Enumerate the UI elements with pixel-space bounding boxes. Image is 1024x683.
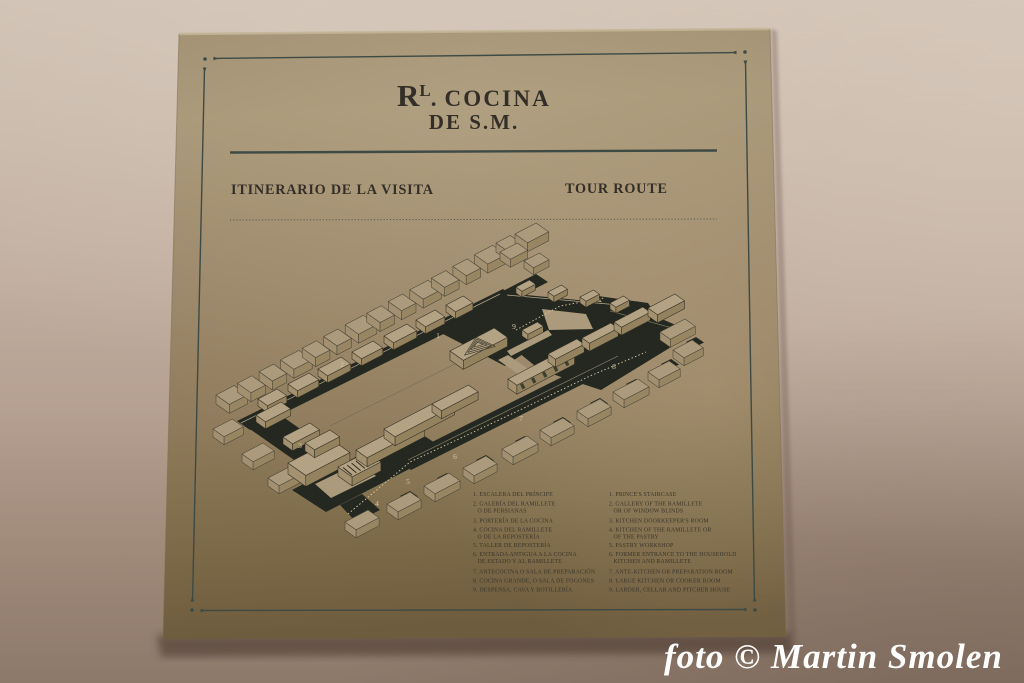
svg-text:1. PRINCE'S STAIRCASE: 1. PRINCE'S STAIRCASE [609,492,677,498]
svg-text:7: 7 [519,414,523,423]
svg-text:4. KITCHEN OF THE RAMILLETE OR: 4. KITCHEN OF THE RAMILLETE OR [609,528,712,534]
svg-text:8. LARGE KITCHEN OR COOKER ROO: 8. LARGE KITCHEN OR COOKER ROOM [609,579,721,585]
svg-text:4: 4 [375,499,379,508]
svg-text:foto © Martin Smolen: foto © Martin Smolen [664,637,1003,676]
svg-text:ITINERARIO DE LA VISITA: ITINERARIO DE LA VISITA [231,182,434,198]
svg-text:2. GALLERY OF THE RAMILLETE: 2. GALLERY OF THE RAMILLETE [609,502,703,508]
svg-text:OF THE PASTRY: OF THE PASTRY [614,535,660,541]
svg-text:4. COCINA DEL RAMILLETE: 4. COCINA DEL RAMILLETE [473,528,552,534]
svg-text:5. TALLER DE REPOSTERÍA: 5. TALLER DE REPOSTERÍA [473,541,551,549]
svg-text:9. LARDER, CELLAR AND PITCHER: 9. LARDER, CELLAR AND PITCHER HOUSE [609,588,731,594]
svg-text:6. FORMER ENTRANCE TO THE HOUS: 6. FORMER ENTRANCE TO THE HOUSEHOLD [609,552,736,558]
svg-text:6. ENTRADA ANTIGUA A LA COCINA: 6. ENTRADA ANTIGUA A LA COCINA [473,552,578,558]
svg-text:1: 1 [436,331,440,340]
svg-text:7. ANTECOCINA O SALA DE PREPAR: 7. ANTECOCINA O SALA DE PREPARACIÓN [473,568,596,576]
svg-text:5: 5 [406,477,410,486]
svg-text:TOUR ROUTE: TOUR ROUTE [565,181,668,197]
svg-text:3: 3 [298,441,302,450]
svg-text:OR OF WINDOW BLINDS: OR OF WINDOW BLINDS [614,509,684,515]
svg-text:8. COCINA GRANDE, O SALA DE FO: 8. COCINA GRANDE, O SALA DE FOGONES [473,579,594,585]
svg-text:7. ANTE-KITCHEN OR PREPARATION: 7. ANTE-KITCHEN OR PREPARATION ROOM [609,570,733,576]
svg-text:2: 2 [340,360,344,369]
svg-text:3. KITCHEN DOORKEEPER'S ROOM: 3. KITCHEN DOORKEEPER'S ROOM [609,519,709,525]
svg-text:3. PORTERÍA DE LA COCINA: 3. PORTERÍA DE LA COCINA [473,517,554,525]
svg-text:6: 6 [453,452,457,461]
svg-text:9. DESPENSA, CAVA Y BOTILLERÍA: 9. DESPENSA, CAVA Y BOTILLERÍA [473,586,573,594]
svg-text:8: 8 [612,362,616,371]
svg-text:2. GALERÍA DEL RAMILLETE: 2. GALERÍA DEL RAMILLETE [473,500,556,508]
svg-text:9: 9 [512,322,516,331]
svg-text:KITCHEN AND RAMILLETE: KITCHEN AND RAMILLETE [614,559,692,565]
svg-text:O DE PERSIANAS: O DE PERSIANAS [478,509,527,515]
svg-text:1. ESCALERA DEL PRÍNCIPE: 1. ESCALERA DEL PRÍNCIPE [473,490,553,498]
svg-text:DE S.M.: DE S.M. [429,110,519,134]
svg-text:DE ESTADO Y AL RAMILLETE: DE ESTADO Y AL RAMILLETE [478,559,563,565]
svg-text:O DE LA REPOSTERÍA: O DE LA REPOSTERÍA [478,533,541,541]
svg-text:5. PASTRY WORKSHOP: 5. PASTRY WORKSHOP [609,543,673,549]
